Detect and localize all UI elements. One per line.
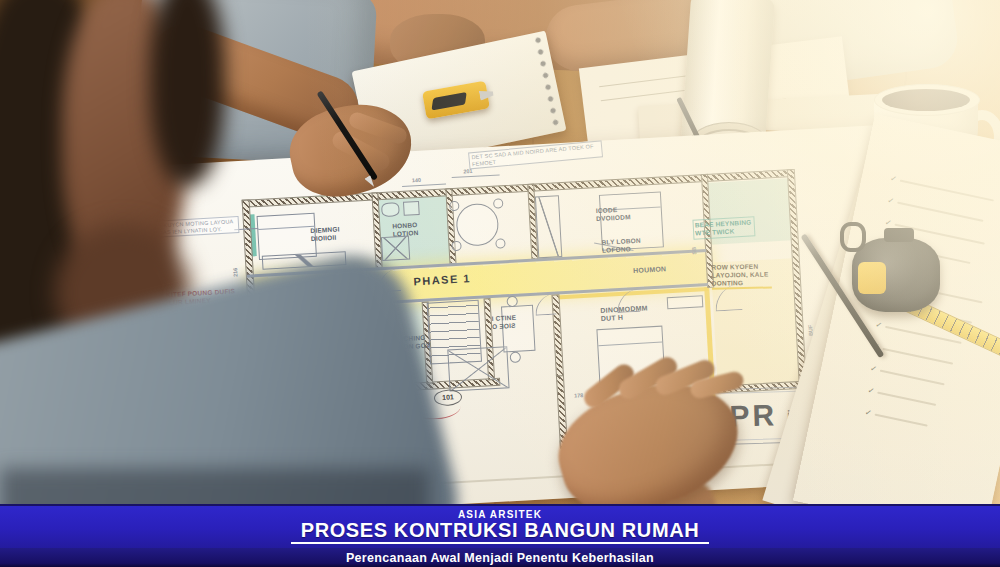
checkmark-icon: ✓ <box>887 197 895 206</box>
knife-grip <box>431 92 466 110</box>
checkmark-icon: ✓ <box>875 321 883 330</box>
room-label: HONBO LOTION <box>392 221 427 238</box>
dim-value: 140 <box>412 177 422 184</box>
plan-note: BLY LOBON LOFONO <box>601 236 644 254</box>
dim-value: 201 <box>463 168 473 175</box>
checklist-line <box>879 369 944 385</box>
room-label: ICODE DVOIIODM <box>596 204 645 222</box>
bed-line <box>598 342 662 347</box>
chair <box>451 241 462 252</box>
title-banner: ASIA ARSITEK PROSES KONTRUKSI BANGUN RUM… <box>0 504 1000 567</box>
closet <box>535 195 562 258</box>
banner-subtitle: Perencanaan Awal Menjadi Penentu Keberha… <box>346 551 654 565</box>
tape-strap <box>840 222 866 252</box>
checklist-line <box>899 179 993 201</box>
coffee-surface <box>882 89 970 111</box>
chair <box>510 352 522 364</box>
checkmark-icon: ✓ <box>869 365 877 374</box>
chair <box>449 201 460 212</box>
dim-value: 216 <box>232 268 239 278</box>
checkmark-icon: ✓ <box>864 409 872 418</box>
stair-cross-box <box>447 346 509 391</box>
checkmark-icon: ✓ <box>889 175 897 184</box>
banner-band: ASIA ARSITEK PROSES KONTRUKSI BANGUN RUM… <box>0 504 1000 548</box>
bath-sink <box>381 202 400 217</box>
checklist-line <box>897 201 984 222</box>
dim-line <box>452 174 500 178</box>
checklist-line <box>877 391 936 406</box>
tape-yellow-panel <box>858 262 886 294</box>
door-arc <box>534 293 556 315</box>
photo-scene: NEY KUYCN MOTING LAYOUA LIN IAS IEN LYNA… <box>0 0 1000 567</box>
foreground-hair-side <box>150 0 225 185</box>
dim-value: 178 <box>574 392 584 399</box>
plan-note: ROW KYOFEN LAYOJION, KALE DONTING <box>711 262 772 290</box>
banner-subtitle-strip: Perencanaan Awal Menjadi Penentu Keberha… <box>0 548 1000 567</box>
chair <box>493 198 504 209</box>
banner-title: PROSES KONTRUKSI BANGUN RUMAH <box>291 520 710 544</box>
room-label: I CTINE O ƎOIƧ <box>491 313 522 330</box>
room-label: DINOMODMM DUT H <box>600 304 659 324</box>
tape-clip <box>884 228 914 242</box>
checklist-line <box>874 413 927 427</box>
checkmark-icon: ✓ <box>884 219 892 228</box>
checklist-line <box>882 347 953 364</box>
dim-line <box>402 183 446 186</box>
toilet <box>403 201 420 216</box>
dining-table <box>455 203 499 247</box>
bed-line <box>258 226 314 230</box>
room-label: DIEMNGI DIOIIOII <box>310 225 355 243</box>
plan-note: BEAE HEYNBING WTE TWICK <box>692 216 755 239</box>
wardrobe <box>667 295 704 309</box>
dim-value: SB <box>691 247 697 255</box>
chair <box>495 238 506 249</box>
shower-tile <box>381 236 410 262</box>
checkmark-icon: ✓ <box>867 387 875 396</box>
